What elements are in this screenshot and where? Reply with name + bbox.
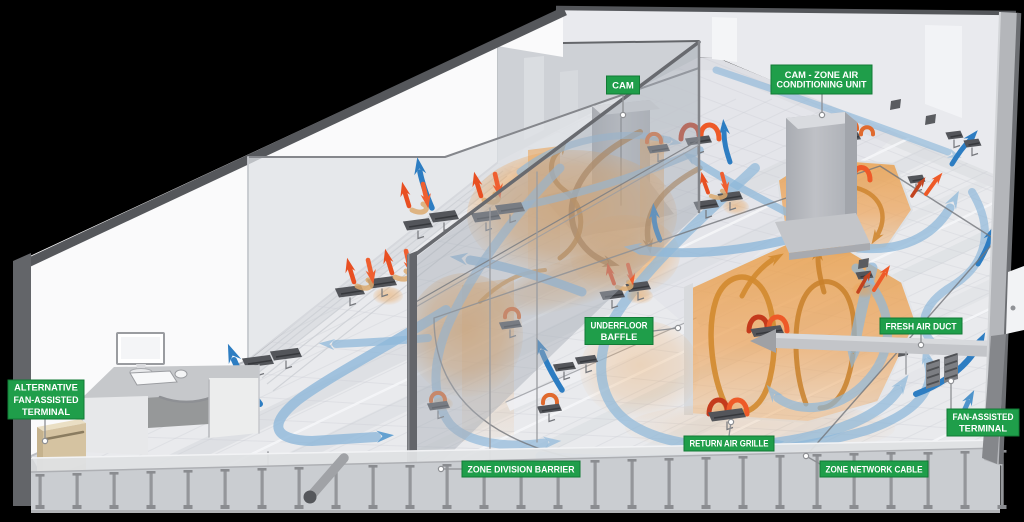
svg-text:CONDITIONING UNIT: CONDITIONING UNIT [777, 80, 867, 90]
svg-text:ALTERNATIVE: ALTERNATIVE [14, 382, 78, 392]
svg-text:UNDERFLOOR: UNDERFLOOR [591, 321, 648, 331]
svg-text:FRESH AIR DUCT: FRESH AIR DUCT [886, 321, 957, 331]
svg-text:FAN-ASSISTED: FAN-ASSISTED [953, 412, 1014, 422]
svg-text:RETURN AIR GRILLE: RETURN AIR GRILLE [690, 439, 769, 449]
svg-text:BAFFLE: BAFFLE [601, 332, 638, 342]
svg-text:CAM - ZONE AIR: CAM - ZONE AIR [785, 70, 859, 80]
svg-text:TERMINAL: TERMINAL [959, 424, 1007, 434]
svg-text:CAM: CAM [612, 80, 634, 91]
svg-text:FAN-ASSISTED: FAN-ASSISTED [14, 395, 79, 405]
svg-text:TERMINAL: TERMINAL [22, 407, 70, 417]
svg-text:ZONE NETWORK CABLE: ZONE NETWORK CABLE [826, 464, 923, 474]
svg-text:ZONE DIVISION BARRIER: ZONE DIVISION BARRIER [468, 464, 575, 474]
